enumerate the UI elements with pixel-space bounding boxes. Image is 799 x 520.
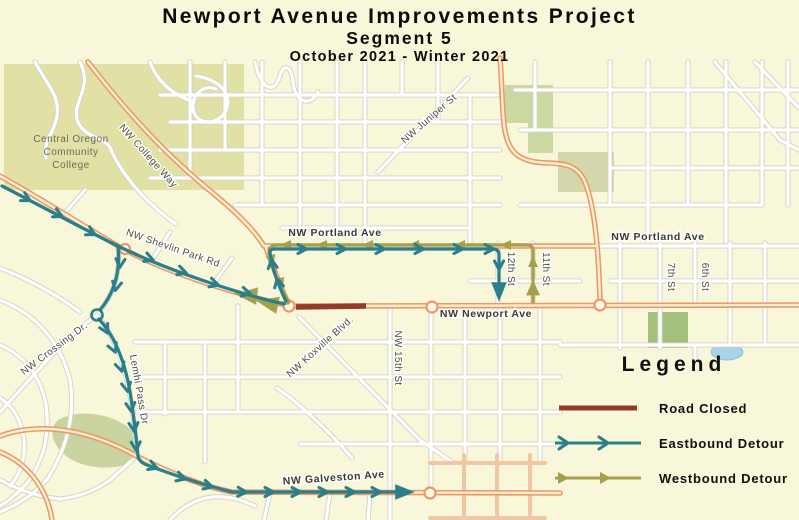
subtitle-dates: October 2021 - Winter 2021 — [0, 50, 799, 66]
area-label: Community — [43, 147, 98, 158]
street-label: 7th St — [665, 263, 676, 292]
street-label: NW Portland Ave — [611, 231, 704, 243]
legend-label: Eastbound Detour — [659, 436, 784, 451]
street-label: NW Crossing Dr. — [19, 320, 90, 377]
road-closed-line — [296, 306, 366, 307]
page-title: Newport Avenue Improvements Project — [0, 5, 799, 28]
street-label: NW Galveston Ave — [282, 468, 385, 487]
legend-item-eastbound-detour: Eastbound Detour — [553, 432, 795, 454]
street-label: 12th St — [505, 252, 516, 287]
park-area — [505, 85, 553, 153]
street-label: NW Juniper St — [399, 92, 459, 146]
street-label: NW Portland Ave — [288, 227, 381, 239]
street-label: NW Shevlin Park Rd — [125, 227, 222, 269]
area-label: College — [52, 160, 89, 171]
legend: Legend Road Closed Eastbound Detour West… — [553, 350, 795, 489]
legend-label: Road Closed — [659, 401, 747, 416]
street-label: 6th St — [699, 263, 710, 292]
road-closed-swatch-icon — [553, 399, 645, 417]
street-label: 11th St — [540, 252, 551, 286]
legend-heading: Legend — [553, 350, 795, 380]
subtitle-segment: Segment 5 — [0, 29, 799, 48]
eastbound-swatch-icon — [553, 434, 645, 452]
map-canvas: NW College WayNW Juniper StNW Shevlin Pa… — [0, 0, 799, 520]
street-label: NW Newport Ave — [440, 308, 532, 320]
westbound-swatch-icon — [553, 469, 645, 487]
street-label: NW 15th St — [392, 330, 403, 385]
legend-item-road-closed: Road Closed — [553, 397, 795, 419]
legend-item-westbound-detour: Westbound Detour — [553, 467, 795, 489]
peach-street-grid — [430, 455, 545, 520]
area-label: Central Oregon — [33, 134, 108, 145]
street-label: NW Koxville Blvd. — [285, 314, 356, 380]
map-title-block: Newport Avenue Improvements Project Segm… — [0, 5, 799, 66]
legend-label: Westbound Detour — [659, 471, 788, 486]
